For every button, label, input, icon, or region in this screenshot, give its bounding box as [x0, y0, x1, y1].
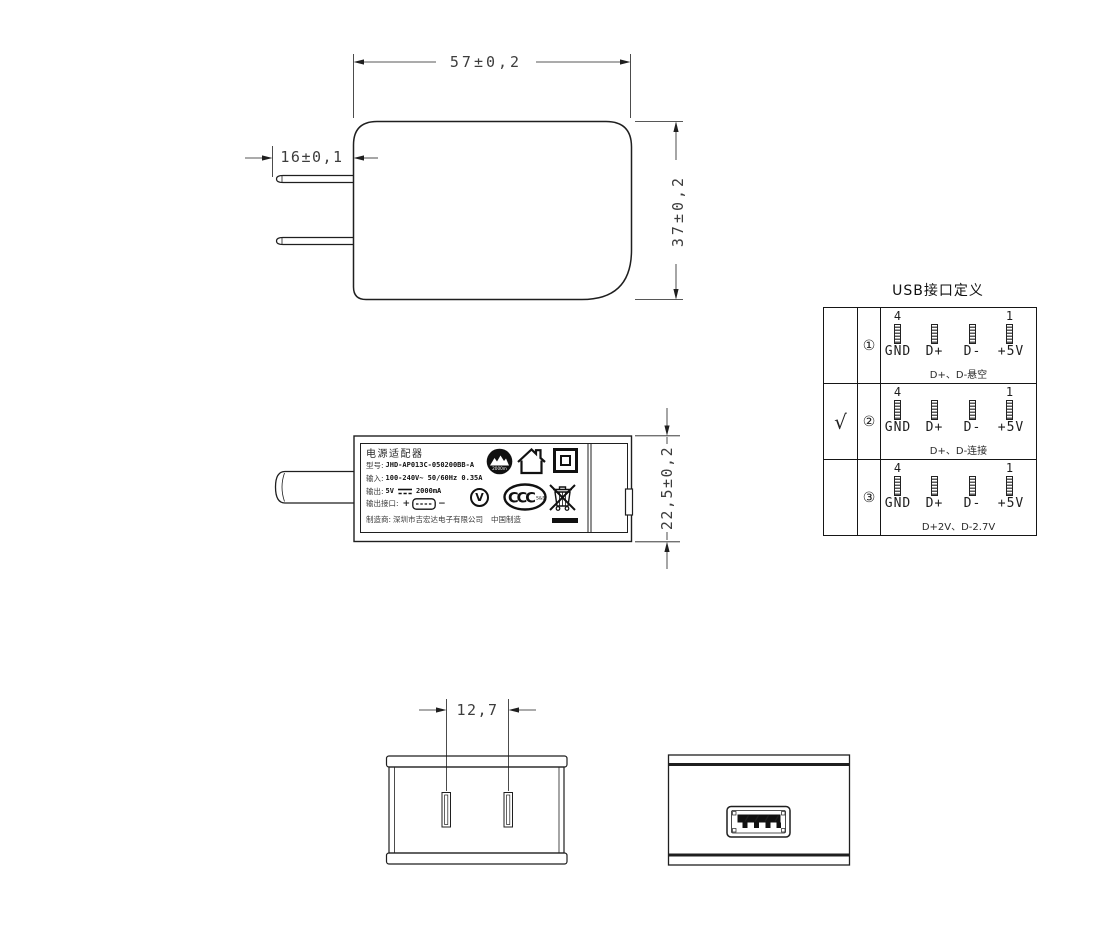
- pin-contact-icon: [1006, 400, 1013, 420]
- input-key: 输入:: [366, 473, 384, 484]
- output-voltage: 5V: [386, 487, 394, 495]
- maker-key: 制造商:: [366, 514, 391, 525]
- rating-label: 电源适配器 型号: JHD-AP013C-050200BB-A 输入: 100-…: [360, 443, 588, 532]
- pin-label-5v: +5V: [998, 344, 1024, 359]
- maker-value: 深圳市吉宏达电子有限公司: [393, 514, 483, 525]
- pin-contact-icon: [1006, 324, 1013, 344]
- pin-number-1: 1: [1006, 385, 1013, 399]
- row2-pin-diagram: 4 1 GND D+ D- +5V D+、D-连接: [881, 384, 1036, 459]
- output-key: 输出:: [366, 486, 384, 497]
- plug-face-prong-slots: [442, 793, 513, 828]
- row3-index: ③: [858, 460, 881, 535]
- pin-label-5v: +5V: [998, 496, 1024, 511]
- side-view-prong: [276, 472, 355, 504]
- pin-contact-icon: [931, 400, 938, 420]
- front-view-prongs: [277, 176, 354, 245]
- front-view-body-outline: [354, 122, 632, 300]
- svg-text:CCC: CCC: [508, 490, 535, 506]
- ccc-mark-icon: CCC S&E: [503, 483, 547, 511]
- usb-pinout-table: ① 4 1 GND D+ D- +5V D+、D-悬空 √ ② 4 1: [823, 307, 1037, 536]
- svg-text:2000m: 2000m: [492, 466, 507, 471]
- front-height-dimension: 37±0,2: [670, 161, 686, 261]
- weee-crossed-bin-icon: [549, 482, 576, 512]
- pin-label-gnd: GND: [885, 344, 911, 359]
- usb-table-row-3: ③ 4 1 GND D+ D- +5V D+2V、D-2.7V: [824, 459, 1036, 535]
- pin-label-dplus: D+: [926, 420, 944, 435]
- pin-contact-icon: [894, 476, 901, 496]
- label-title: 电源适配器: [366, 445, 424, 460]
- weee-bar-icon: [552, 518, 579, 523]
- pin-pitch-dimension: 12,7: [454, 702, 501, 718]
- pin-number-4: 4: [894, 309, 901, 323]
- indoor-use-house-icon: [516, 447, 547, 475]
- pin-label-dplus: D+: [926, 496, 944, 511]
- adapter-technical-drawing: 57±0,2 37±0,2 16±0,1 22,5±0,2 12,7 电源适配器…: [0, 0, 1100, 925]
- row3-note: D+2V、D-2.7V: [881, 518, 1036, 533]
- output-current: 2000mA: [416, 487, 441, 495]
- usb-table-row-2: √ ② 4 1 GND D+ D- +5V D+、D-连接: [824, 383, 1036, 459]
- row3-pin-diagram: 4 1 GND D+ D- +5V D+2V、D-2.7V: [881, 460, 1036, 535]
- pin-label-dminus: D-: [964, 420, 982, 435]
- row1-selected-cell: [824, 308, 858, 383]
- usb-receptacle-icon: [412, 498, 436, 510]
- pin-number-1: 1: [1006, 309, 1013, 323]
- row2-selected-cell: √: [824, 384, 858, 459]
- pin-contact-icon: [969, 400, 976, 420]
- pin-label-dminus: D-: [964, 496, 982, 511]
- row1-pin-diagram: 4 1 GND D+ D- +5V D+、D-悬空: [881, 308, 1036, 383]
- plug-face-view-outline: [387, 756, 568, 864]
- usb-port-drawing: [727, 807, 790, 838]
- side-height-dimension: 22,5±0,2: [659, 445, 675, 531]
- pin-contact-icon: [931, 324, 938, 344]
- prong-length-dimension: 16±0,1: [273, 149, 351, 165]
- pin-number-4: 4: [894, 461, 901, 475]
- row2-index: ②: [858, 384, 881, 459]
- pin-label-gnd: GND: [885, 420, 911, 435]
- pin-label-5v: +5V: [998, 420, 1024, 435]
- input-value: 100-240V~ 50/60Hz 0.35A: [386, 474, 483, 482]
- port-key: 输出接口:: [366, 498, 399, 509]
- pin-contact-icon: [969, 476, 976, 496]
- row2-note: D+、D-连接: [881, 442, 1036, 457]
- svg-text:S&E: S&E: [536, 495, 545, 501]
- row1-note: D+、D-悬空: [881, 366, 1036, 381]
- dc-symbol-icon: [397, 487, 413, 496]
- pin-contact-icon: [1006, 476, 1013, 496]
- class-ii-double-square-icon: [553, 448, 578, 473]
- model-key: 型号:: [366, 460, 384, 471]
- pin-label-dplus: D+: [926, 344, 944, 359]
- row3-selected-cell: [824, 460, 858, 535]
- altitude-2000m-icon: 2000m: [486, 448, 513, 475]
- row1-index: ①: [858, 308, 881, 383]
- pin-contact-icon: [969, 324, 976, 344]
- pin-label-gnd: GND: [885, 496, 911, 511]
- front-width-dimension: 57±0,2: [436, 54, 536, 70]
- efficiency-mark-icon: V: [470, 488, 489, 507]
- usb-table-row-1: ① 4 1 GND D+ D- +5V D+、D-悬空: [824, 308, 1036, 383]
- usb-face-view-outline: [669, 755, 850, 865]
- origin-text: 中国制造: [491, 514, 521, 525]
- usb-table-title: USB接口定义: [858, 280, 1018, 300]
- pin-contact-icon: [894, 400, 901, 420]
- port-plus-sign: +: [403, 499, 411, 509]
- pin-label-dminus: D-: [964, 344, 982, 359]
- pin-number-1: 1: [1006, 461, 1013, 475]
- model-value: JHD-AP013C-050200BB-A: [386, 461, 475, 469]
- pin-contact-icon: [894, 324, 901, 344]
- pin-number-4: 4: [894, 385, 901, 399]
- pin-contact-icon: [931, 476, 938, 496]
- port-minus-sign: −: [438, 499, 446, 509]
